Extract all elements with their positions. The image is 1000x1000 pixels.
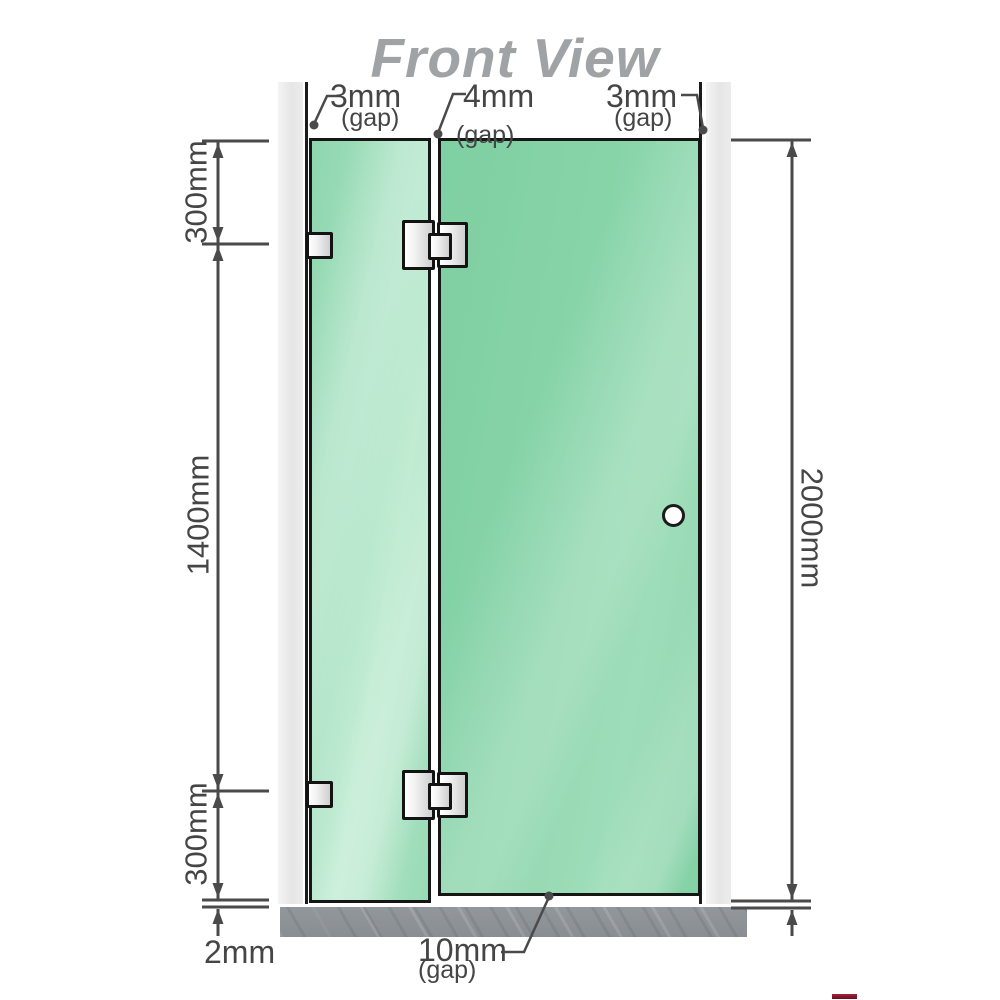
gap-bottom-suffix: (gap)	[418, 958, 476, 983]
segment-top-label: 300mm	[181, 140, 212, 243]
segment-bottom-label: 300mm	[181, 782, 212, 885]
corner-logo-fragment	[832, 994, 857, 999]
gap-top-left-suffix: (gap)	[341, 106, 399, 131]
wall-bracket-bottom	[306, 781, 333, 808]
gap-top-right-suffix: (gap)	[614, 106, 672, 131]
arrow-up-right-floor	[787, 910, 798, 925]
leader-dot-top-left	[310, 121, 319, 130]
arrow-down-total	[787, 884, 798, 899]
wall-bracket-top	[306, 232, 333, 259]
arrow-down-seg1	[213, 227, 224, 242]
arrow-up-seg1	[213, 143, 224, 158]
right-wall-channel	[706, 82, 731, 904]
arrow-down-seg3	[213, 883, 224, 898]
left-wall-channel	[278, 82, 303, 904]
segment-middle-label: 1400mm	[183, 455, 214, 576]
door-handle-knob	[662, 504, 685, 527]
floor-base	[280, 907, 747, 937]
arrow-up-seg2	[213, 246, 224, 261]
front-view-diagram: Front View	[0, 0, 1000, 1000]
arrow-up-floor-gap	[213, 909, 224, 924]
total-height-label: 2000mm	[797, 468, 828, 589]
hinge-top-bridge	[428, 233, 452, 260]
hinge-bottom-bridge	[428, 783, 452, 810]
gap-top-center-value: 4mm	[463, 80, 534, 112]
floor-gap-label: 2mm	[204, 936, 275, 968]
arrow-up-seg3	[213, 793, 224, 808]
gap-top-center-suffix: (gap)	[456, 123, 514, 148]
arrow-up-total	[787, 142, 798, 157]
arrow-down-seg2	[213, 774, 224, 789]
